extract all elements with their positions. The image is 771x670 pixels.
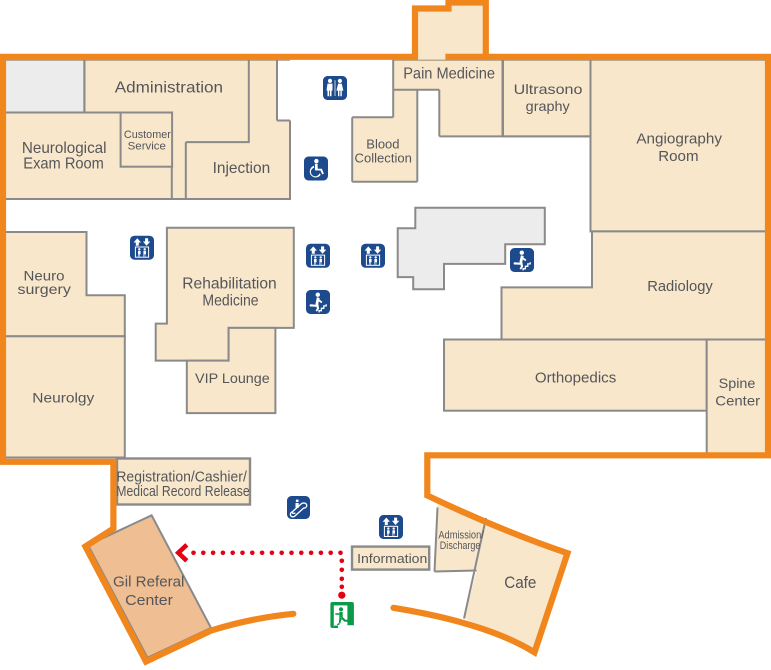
svg-text:Center: Center xyxy=(125,592,173,609)
svg-text:Service: Service xyxy=(128,141,166,153)
svg-text:Spine: Spine xyxy=(719,375,756,391)
svg-text:Administration: Administration xyxy=(115,80,223,97)
svg-text:Center: Center xyxy=(715,393,760,409)
svg-text:Information: Information xyxy=(357,552,427,566)
svg-text:Collection: Collection xyxy=(355,151,412,166)
svg-text:Radiology: Radiology xyxy=(647,279,713,295)
svg-text:Exam Room: Exam Room xyxy=(23,155,104,172)
svg-text:Ultrasono: Ultrasono xyxy=(514,81,583,97)
svg-text:surgery: surgery xyxy=(18,282,72,298)
svg-text:VIP Lounge: VIP Lounge xyxy=(195,371,270,387)
svg-text:Pain Medicine: Pain Medicine xyxy=(403,65,495,82)
svg-text:Medicine: Medicine xyxy=(202,292,258,309)
svg-text:Orthopedics: Orthopedics xyxy=(535,369,616,386)
svg-text:Neurolgy: Neurolgy xyxy=(32,391,95,407)
svg-text:Cafe: Cafe xyxy=(504,574,536,592)
svg-text:Blood: Blood xyxy=(366,137,399,152)
svg-text:Room: Room xyxy=(658,148,698,165)
svg-text:Injection: Injection xyxy=(213,160,271,177)
svg-text:Medical Record Release: Medical Record Release xyxy=(116,484,249,500)
svg-text:Customer: Customer xyxy=(124,129,171,141)
svg-text:graphy: graphy xyxy=(526,98,570,114)
svg-text:Angiography: Angiography xyxy=(636,130,722,147)
svg-text:Discharge: Discharge xyxy=(440,540,481,552)
svg-text:Rehabilitation: Rehabilitation xyxy=(182,275,276,292)
svg-text:Neurological: Neurological xyxy=(22,140,107,157)
svg-text:Gil Referal: Gil Referal xyxy=(113,574,184,591)
